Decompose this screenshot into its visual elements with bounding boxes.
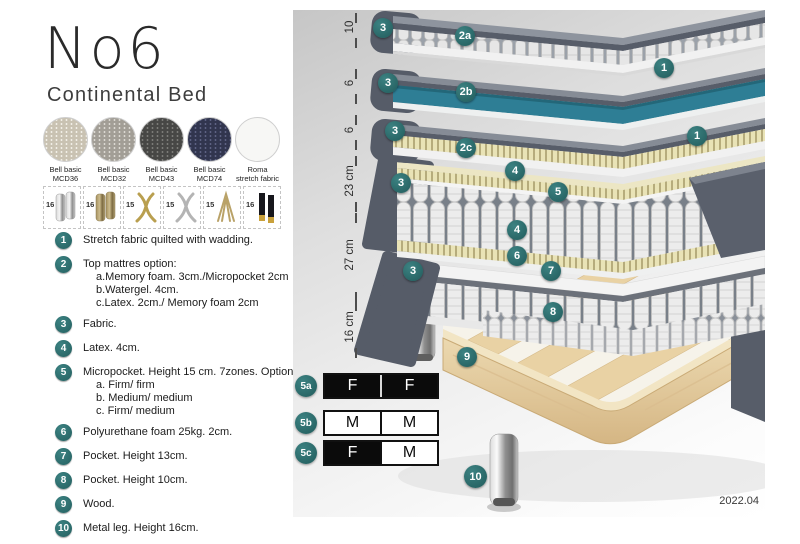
legend-number-badge: 9 xyxy=(55,496,72,513)
layer-badge-2b: 2b xyxy=(456,82,476,102)
firmness-badge: 5a xyxy=(295,375,317,397)
page: { "header": { "title": "No6", "subtitle"… xyxy=(0,0,800,533)
legend-text: Pocket. Height 10cm. xyxy=(83,472,188,489)
legend-item-2: 2 Top mattres option: a.Memory foam. 3cm… xyxy=(55,256,297,309)
leg-options: 16 16 15 15 15 xyxy=(43,186,281,229)
legend-text: Top mattres option: a.Memory foam. 3cm./… xyxy=(83,256,289,309)
fabric-swatch: Bell basicMCD36 xyxy=(43,117,88,183)
legend-number-badge: 1 xyxy=(55,232,72,249)
hairpin-leg-icon xyxy=(213,190,239,224)
legend-text: Metal leg. Height 16cm. xyxy=(83,520,199,537)
legend-number-badge: 2 xyxy=(55,256,72,273)
firmness-row-5b: 5b M M xyxy=(295,410,439,436)
legend-item-10: 10 Metal leg. Height 16cm. xyxy=(55,520,297,537)
ruler-label: 27 cm xyxy=(344,225,356,285)
layer-badge-2c: 2c xyxy=(456,138,476,158)
bed-diagram-panel: 10 6 6 23 cm 27 cm 16 cm 3 2a 1 3 2b 3 2… xyxy=(293,10,765,517)
ruler-tick xyxy=(355,213,357,223)
legend-number-badge: 3 xyxy=(55,316,72,333)
product-subtitle: Continental Bed xyxy=(47,84,207,107)
fabric-swatch-circle[interactable] xyxy=(43,117,88,162)
firmness-cell: M xyxy=(380,412,437,434)
black-gold-leg-icon xyxy=(253,190,279,224)
layer-badge-fabric: 3 xyxy=(385,121,405,141)
legend-text: Polyurethane foam 25kg. 2cm. xyxy=(83,424,232,441)
firmness-row-5a: 5a F F xyxy=(295,373,439,399)
cross-silver-leg-icon xyxy=(173,190,199,224)
legend-item-5: 5 Micropocket. Height 15 cm. 7zones. Opt… xyxy=(55,364,297,417)
layer-badge-fabric: 3 xyxy=(378,73,398,93)
firmness-cell: M xyxy=(325,412,380,434)
legend-text: Latex. 4cm. xyxy=(83,340,140,357)
layer-badge-stretch: 1 xyxy=(654,58,674,78)
leg-option-cylinder-brass[interactable]: 16 xyxy=(83,186,121,229)
layer-badge-latex: 4 xyxy=(507,220,527,240)
cylinder-brass-leg-icon xyxy=(93,190,119,224)
layer-badge-pocket13: 7 xyxy=(541,261,561,281)
legend-text: Pocket. Height 13cm. xyxy=(83,448,188,465)
layer-badge-fabric: 3 xyxy=(373,18,393,38)
fabric-swatch: Bell basicMCD74 xyxy=(187,117,232,183)
legend-number-badge: 7 xyxy=(55,448,72,465)
fabric-swatch: Bell basicMCD32 xyxy=(91,117,136,183)
firmness-cell: F xyxy=(325,442,380,464)
legend-item-6: 6 Polyurethane foam 25kg. 2cm. xyxy=(55,424,297,441)
firmness-row-5c: 5c F M xyxy=(295,440,439,466)
fabric-swatch-circle[interactable] xyxy=(235,117,280,162)
legend-item-3: 3 Fabric. xyxy=(55,316,297,333)
version-label: 2022.04 xyxy=(709,495,759,507)
leg-option-hairpin[interactable]: 15 xyxy=(203,186,241,229)
layer-badge-fabric: 3 xyxy=(391,173,411,193)
ruler-label: 10 xyxy=(344,0,356,57)
layer-badge-2a: 2a xyxy=(455,26,475,46)
layer-badge-micropocket: 5 xyxy=(548,182,568,202)
legend-text: Stretch fabric quilted with wadding. xyxy=(83,232,253,249)
layer-badge-leg: 10 xyxy=(464,465,487,488)
legend-item-8: 8 Pocket. Height 10cm. xyxy=(55,472,297,489)
fabric-swatches: Bell basicMCD36 Bell basicMCD32 Bell bas… xyxy=(43,117,280,183)
ruler-label: 23 cm xyxy=(344,151,356,211)
fabric-swatch: Bell basicMCD43 xyxy=(139,117,184,183)
legend-text: Wood. xyxy=(83,496,115,513)
firmness-cells: M M xyxy=(323,410,439,436)
layer-badge-foam: 6 xyxy=(507,246,527,266)
fabric-swatch: Romastretch fabric xyxy=(235,117,280,183)
legend-list: 1 Stretch fabric quilted with wadding. 2… xyxy=(55,232,297,544)
legend-text: Micropocket. Height 15 cm. 7zones. Optio… xyxy=(83,364,296,417)
legend-number-badge: 10 xyxy=(55,520,72,537)
cylinder-silver-leg-icon xyxy=(53,190,79,224)
product-title: No6 xyxy=(44,16,167,82)
leg-option-cross-silver[interactable]: 15 xyxy=(163,186,201,229)
leg-option-cylinder-silver[interactable]: 16 xyxy=(43,186,81,229)
metal-leg-front xyxy=(487,434,521,512)
ruler-label: 16 cm xyxy=(344,297,356,357)
firmness-cell: F xyxy=(325,375,380,397)
micropocket-mattress-layer xyxy=(367,156,765,279)
legend-number-badge: 4 xyxy=(55,340,72,357)
legend-item-7: 7 Pocket. Height 13cm. xyxy=(55,448,297,465)
legend-number-badge: 6 xyxy=(55,424,72,441)
firmness-badge: 5c xyxy=(295,442,317,464)
firmness-cells: F F xyxy=(323,373,439,399)
firmness-badge: 5b xyxy=(295,412,317,434)
legend-number-badge: 8 xyxy=(55,472,72,489)
legend-item-1: 1 Stretch fabric quilted with wadding. xyxy=(55,232,297,249)
layer-badge-fabric: 3 xyxy=(403,261,423,281)
legend-item-9: 9 Wood. xyxy=(55,496,297,513)
watergel-topper-layer xyxy=(369,68,765,130)
leg-option-black-gold[interactable]: 16 xyxy=(243,186,281,229)
layer-badge-latex: 4 xyxy=(505,161,525,181)
fabric-swatch-circle[interactable] xyxy=(91,117,136,162)
layer-badge-pocket10: 8 xyxy=(543,302,563,322)
firmness-cells: F M xyxy=(323,440,439,466)
firmness-cell: M xyxy=(380,442,437,464)
cross-gold-leg-icon xyxy=(133,190,159,224)
firmness-cell: F xyxy=(380,375,437,397)
leg-option-cross-gold[interactable]: 15 xyxy=(123,186,161,229)
legend-text: Fabric. xyxy=(83,316,117,333)
fabric-swatch-circle[interactable] xyxy=(187,117,232,162)
layer-badge-stretch: 1 xyxy=(687,126,707,146)
micropocket-topper-layer xyxy=(369,10,765,76)
legend-number-badge: 5 xyxy=(55,364,72,381)
fabric-swatch-circle[interactable] xyxy=(139,117,184,162)
legend-item-4: 4 Latex. 4cm. xyxy=(55,340,297,357)
layer-badge-wood: 9 xyxy=(457,347,477,367)
